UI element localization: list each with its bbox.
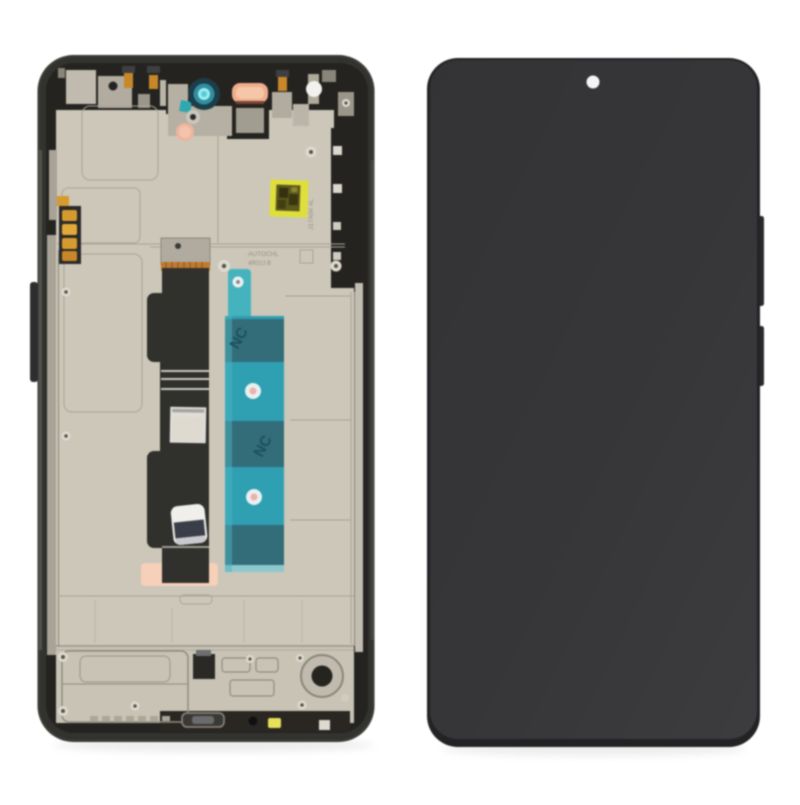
svg-text:4R02J B: 4R02J B (248, 261, 271, 267)
svg-text:AUTOCHL: AUTOCHL (248, 251, 279, 258)
svg-text:J17A04 4L: J17A04 4L (308, 199, 315, 230)
